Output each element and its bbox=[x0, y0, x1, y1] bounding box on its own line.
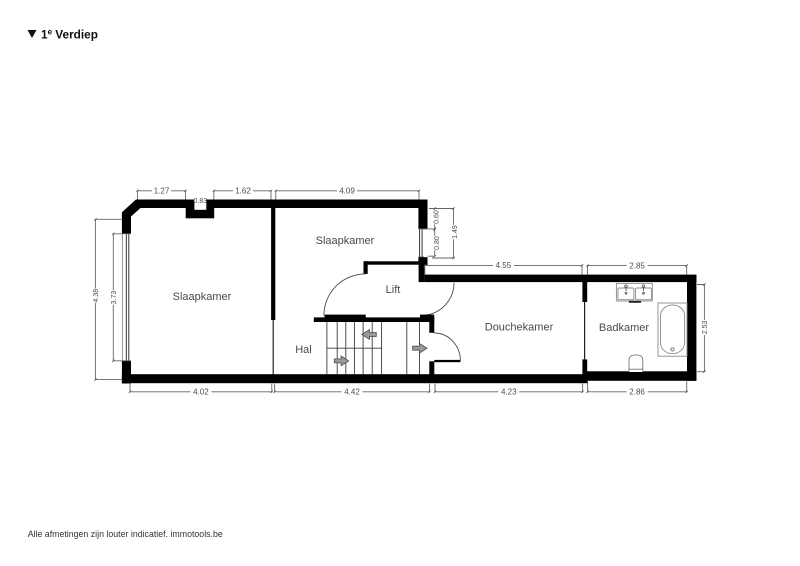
svg-text:0.83: 0.83 bbox=[193, 198, 207, 205]
svg-text:1.49: 1.49 bbox=[452, 225, 459, 239]
svg-text:4.55: 4.55 bbox=[496, 261, 512, 270]
svg-text:Slaapkamer: Slaapkamer bbox=[173, 291, 232, 303]
svg-text:1.62: 1.62 bbox=[235, 187, 251, 196]
svg-text:4.38: 4.38 bbox=[93, 289, 100, 303]
svg-text:4.02: 4.02 bbox=[193, 388, 209, 397]
svg-text:2.85: 2.85 bbox=[629, 261, 645, 270]
svg-text:1.27: 1.27 bbox=[154, 187, 170, 196]
svg-text:Douchekamer: Douchekamer bbox=[485, 322, 554, 334]
svg-text:0.60: 0.60 bbox=[433, 210, 440, 224]
svg-text:4.42: 4.42 bbox=[344, 388, 360, 397]
svg-text:4.23: 4.23 bbox=[501, 388, 517, 397]
svg-text:0.80: 0.80 bbox=[434, 236, 441, 250]
svg-text:Lift: Lift bbox=[386, 284, 401, 296]
svg-text:Hal: Hal bbox=[295, 344, 312, 356]
svg-text:3.73: 3.73 bbox=[111, 291, 118, 305]
svg-text:Slaapkamer: Slaapkamer bbox=[316, 235, 375, 247]
svg-text:2.53: 2.53 bbox=[702, 320, 709, 334]
svg-text:4.09: 4.09 bbox=[339, 187, 355, 196]
svg-text:Badkamer: Badkamer bbox=[599, 322, 649, 334]
svg-text:Alle afmetingen zijn louter in: Alle afmetingen zijn louter indicatief. … bbox=[28, 529, 223, 539]
svg-text:2.86: 2.86 bbox=[629, 388, 645, 397]
